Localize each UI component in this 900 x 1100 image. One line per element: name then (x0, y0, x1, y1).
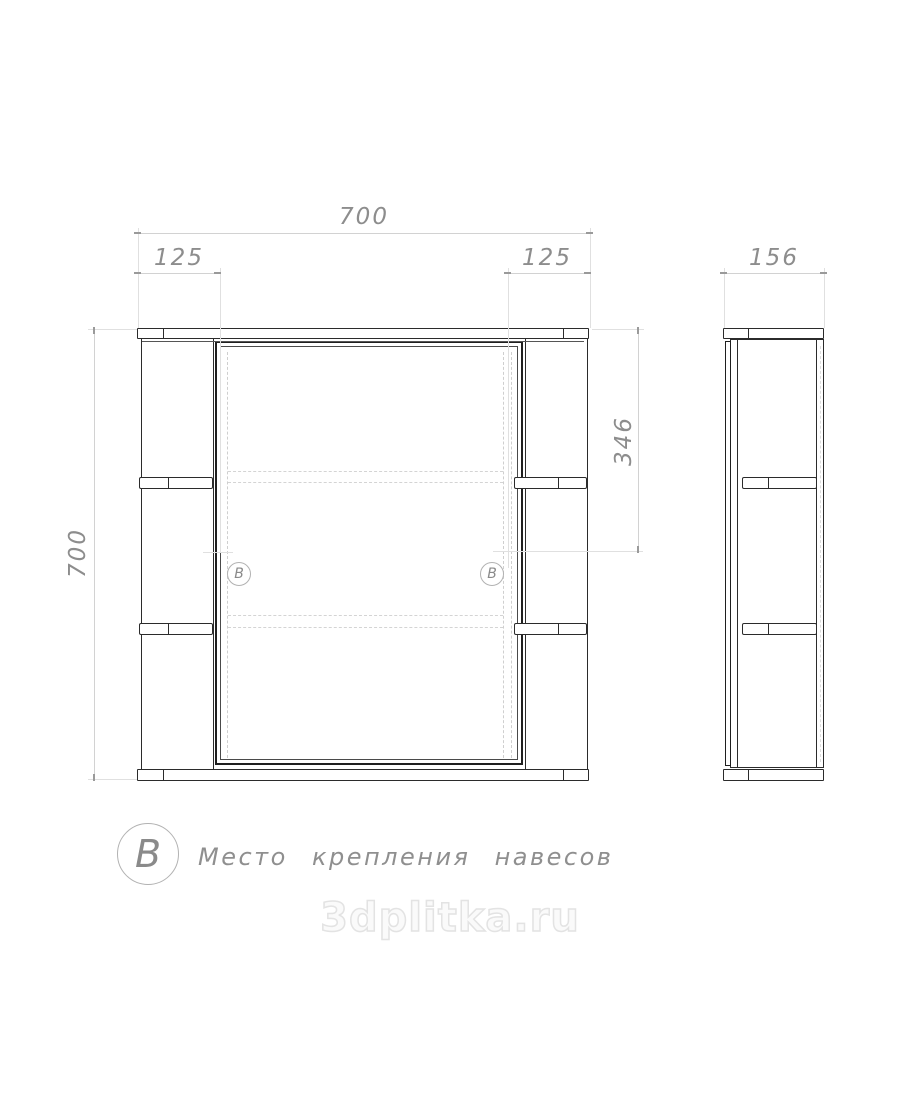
front-bottom-panel-joint-left (163, 770, 164, 780)
front-left-panel-inner-edge (213, 339, 214, 769)
ext-line-depth-right (824, 268, 825, 328)
side-shelf-1 (742, 477, 817, 489)
front-right-panel-outer-edge (587, 339, 588, 769)
side-shelf-1-joint (768, 478, 769, 488)
side-bottom-panel-joint (748, 770, 749, 780)
front-top-panel-underline (142, 341, 584, 342)
legend-symbol-circle: B (117, 823, 179, 885)
side-back-panel-line (816, 340, 817, 768)
dim-tick (586, 232, 593, 234)
ext-line-width-left (138, 228, 139, 328)
front-left-shelf-2 (139, 623, 213, 635)
side-top-panel-joint (748, 329, 749, 338)
dim-line-offset-left (138, 273, 220, 274)
mount-marker-right-label: B (487, 566, 497, 582)
hidden-shelf1-bottom-line (228, 482, 503, 483)
ext-line-width-right (590, 228, 591, 328)
dim-label-offset-left: 125 (129, 245, 229, 271)
side-body (730, 339, 824, 768)
front-bottom-panel-joint-right (563, 770, 564, 780)
hidden-shelf2-top-line (228, 615, 503, 616)
front-right-panel-inner-edge (525, 339, 526, 769)
hidden-shelf1-top-line (228, 471, 503, 472)
dim-tick (637, 546, 639, 553)
side-mirror-door-profile (725, 341, 731, 766)
legend-label: Место крепления навесов (198, 843, 613, 871)
side-shelf-2-joint (768, 624, 769, 634)
watermark-text: 3dplitka.ru (290, 895, 610, 941)
dim-label-front-height: 700 (65, 503, 91, 603)
front-left-panel-outer-edge (141, 339, 142, 769)
mount-marker-right: B (480, 562, 504, 586)
dim-tick (134, 232, 141, 234)
dim-line-height (94, 330, 95, 780)
hidden-left-partition-line (227, 352, 228, 758)
front-top-panel-joint-left (163, 329, 164, 338)
side-front-edge-line (737, 339, 738, 768)
front-left-shelf-1 (139, 477, 213, 489)
dim-label-mount-height: 346 (611, 391, 637, 491)
dim-line-depth (724, 273, 824, 274)
dim-line-offset-right (508, 273, 590, 274)
mount-right-crosshair-line (493, 551, 643, 552)
dim-label-front-width: 700 (314, 204, 414, 230)
front-right-shelf-2-joint (558, 624, 559, 634)
mount-marker-left: B (227, 562, 251, 586)
dim-tick (93, 327, 95, 334)
ext-line-offset-left (220, 268, 221, 553)
dim-tick (134, 272, 141, 274)
ext-line-height-top (88, 329, 137, 330)
dim-tick (720, 272, 727, 274)
dim-tick (584, 272, 591, 274)
dim-tick (504, 272, 511, 274)
front-right-shelf-1-joint (558, 478, 559, 488)
ext-line-offset-right (508, 268, 509, 568)
side-top-panel (723, 328, 824, 339)
front-left-shelf-2-joint (168, 624, 169, 634)
front-bottom-panel (137, 769, 589, 781)
front-left-shelf-1-joint (168, 478, 169, 488)
ext-line-depth-left (724, 268, 725, 328)
ext-line-height-bottom (88, 779, 137, 780)
front-mirror-door-frame (220, 346, 518, 760)
technical-drawing-canvas: 3dplitka.ru B B (0, 0, 900, 1100)
mount-left-crosshair-line (203, 552, 233, 553)
legend-symbol: B (135, 832, 161, 876)
dim-tick (93, 774, 95, 781)
side-shelf-2 (742, 623, 817, 635)
side-back-panel-dashed-line (820, 346, 821, 762)
hidden-right-partition-line-2 (511, 352, 512, 758)
dim-tick (637, 327, 639, 334)
front-top-panel-joint-right (563, 329, 564, 338)
hidden-right-partition-line-1 (503, 352, 504, 758)
dim-tick (214, 272, 221, 274)
hidden-shelf2-bottom-line (228, 627, 503, 628)
dim-label-depth: 156 (724, 245, 824, 271)
front-right-shelf-1 (514, 477, 587, 489)
mount-marker-left-label: B (234, 566, 244, 582)
dim-label-offset-right: 125 (497, 245, 597, 271)
dim-tick (820, 272, 827, 274)
front-right-shelf-2 (514, 623, 587, 635)
side-bottom-panel (723, 769, 824, 781)
front-top-panel (137, 328, 589, 339)
dim-line-width (138, 233, 590, 234)
dim-line-mount-height (638, 330, 639, 552)
